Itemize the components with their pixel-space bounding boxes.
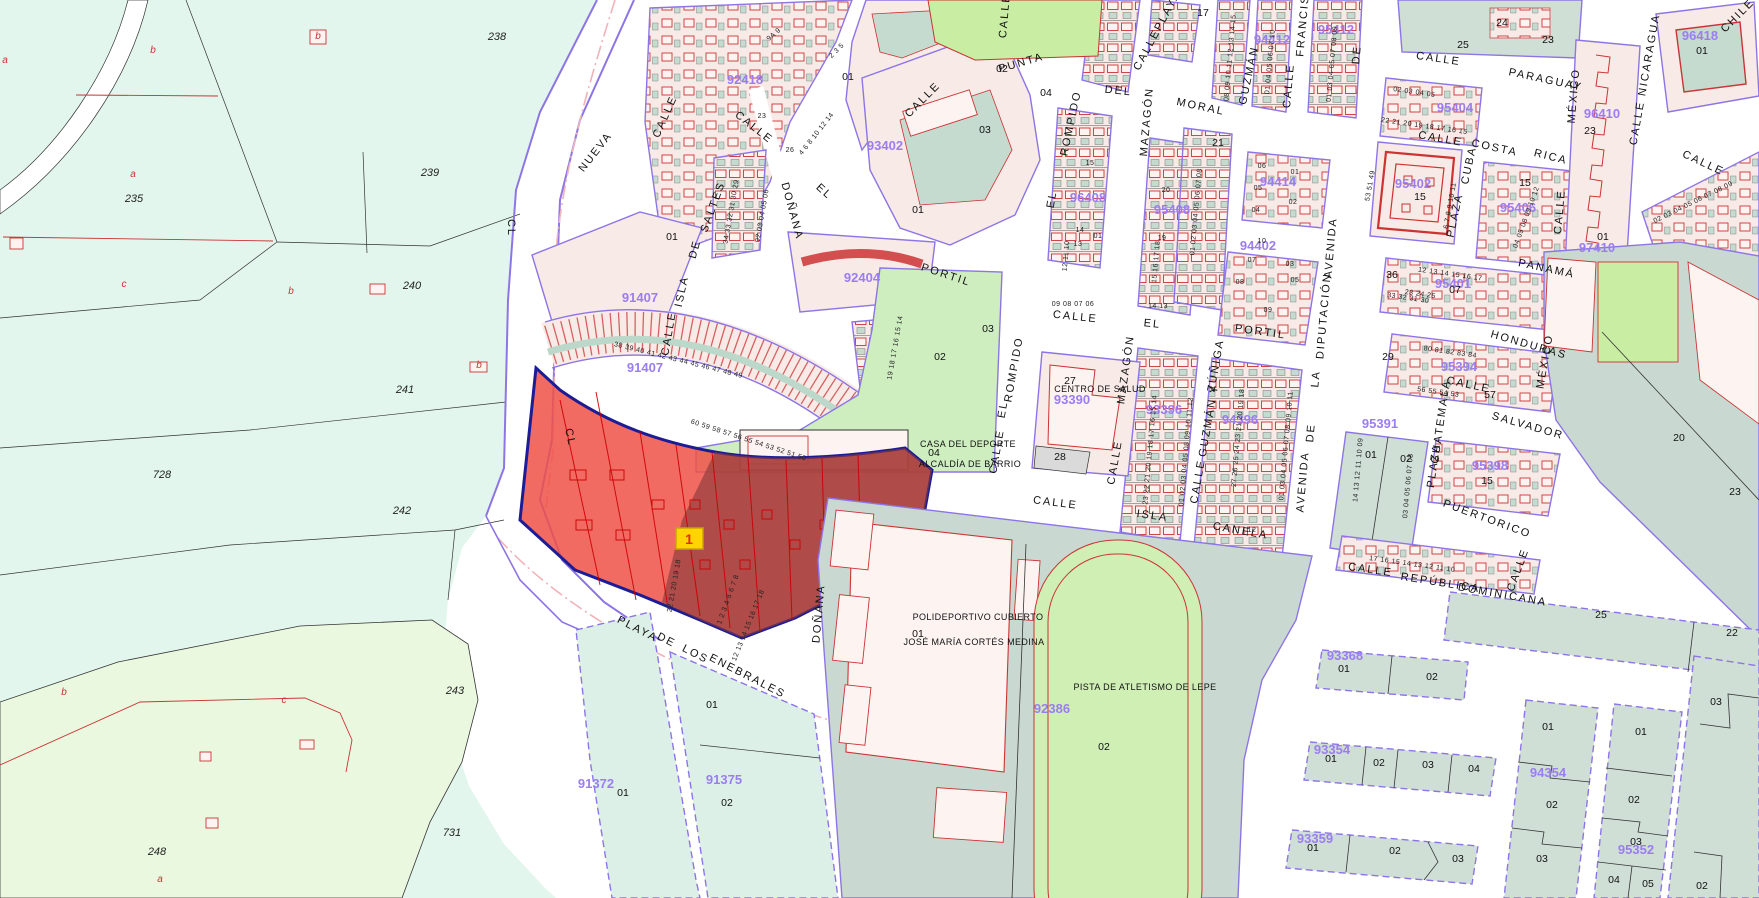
rural-parcel-number: 242 — [392, 505, 411, 517]
parcel-number: 02 — [996, 63, 1008, 75]
house-number-row: 07 — [1248, 257, 1257, 264]
polideportivo-building — [846, 522, 1012, 772]
rural-parcel-number: 235 — [124, 193, 144, 205]
block-id: 96418 — [1682, 28, 1718, 43]
parcel-number: 03 — [1452, 853, 1464, 865]
rural-letter: b — [61, 687, 67, 698]
facility-label: CASA DEL DEPORTE — [920, 439, 1016, 449]
parcel-number: 15 — [1481, 475, 1493, 487]
parcel-number: 02 — [1546, 799, 1558, 811]
block-id: 92386 — [1034, 701, 1070, 716]
parcel-number: 01 — [1597, 231, 1609, 243]
parcel-number: 03 — [1536, 853, 1548, 865]
parcel-number: 28 — [1054, 451, 1066, 463]
parcel-number: 15 — [1519, 177, 1531, 189]
block-id: 95398 — [1472, 458, 1508, 473]
parcel-number: 21 — [1212, 137, 1224, 149]
rural-letter: b — [476, 360, 482, 371]
block-91372[interactable] — [576, 612, 700, 898]
house-number-row: 05 — [1254, 185, 1263, 192]
street-label: LA — [1309, 370, 1322, 388]
parcel-number: 02 — [1628, 794, 1640, 806]
rural-parcel-number: 240 — [402, 280, 422, 292]
street-label: EL — [814, 181, 835, 202]
street-label: CL — [505, 219, 517, 237]
block-id: 96408 — [1070, 190, 1106, 205]
house-number-row: 04 — [1252, 207, 1261, 214]
block-id: 95402 — [1395, 176, 1431, 191]
block-id: 92404 — [844, 270, 881, 285]
parcel-number: 05 — [1642, 878, 1654, 890]
house-number-row: 4 6 8 10 12 14 — [798, 112, 835, 157]
parcel-number: 03 — [1422, 759, 1434, 771]
house-number-row: 06 — [1258, 163, 1267, 170]
block-id: 94354 — [1530, 765, 1567, 780]
house-number-row: 23 — [758, 113, 767, 120]
parcel-number: 25 — [1595, 609, 1607, 621]
street-label: AVENIDA — [1294, 451, 1311, 513]
parcel-number: 01 — [1696, 45, 1708, 57]
street-label: DE — [1350, 45, 1364, 65]
rural-letter: b — [288, 286, 294, 297]
sports-court — [1598, 262, 1678, 362]
block-moral-s[interactable] — [1174, 128, 1232, 310]
rural-parcel-number: 241 — [395, 384, 414, 396]
street-label: EL — [1143, 317, 1162, 331]
street-label: AVENIDA — [1322, 217, 1339, 279]
facility-label: JOSÉ MARÍA CORTÉS MEDINA — [904, 637, 1045, 647]
parcel-number: 36 — [1386, 269, 1398, 281]
house-number-row: 12 — [1248, 527, 1257, 534]
parcel-number: 01 — [1307, 842, 1319, 854]
street-label: ROMPIDO — [1002, 336, 1025, 404]
parcel-number: 03 — [982, 323, 994, 335]
map-canvas: 1 CLCLCALLENUEVACALLEISLADESALTESCALLEDO… — [0, 0, 1759, 898]
house-number-row: 03 — [1286, 261, 1295, 268]
rural-letter: b — [150, 45, 156, 56]
rural-parcel-number: 239 — [420, 167, 439, 179]
street-label: SALVADOR — [1490, 410, 1565, 442]
house-number-row: 05 — [1291, 277, 1300, 284]
selected-parcel-marker[interactable]: 1 — [676, 528, 703, 549]
parcel-number: 02 — [721, 797, 733, 809]
street-label: DIPUTACIÓN — [1313, 272, 1334, 360]
parcel-number: 23 — [1584, 125, 1596, 137]
parcel-number: 25 — [1457, 39, 1469, 51]
block-id: 95404 — [1437, 100, 1474, 115]
parcel-number: 01 — [617, 787, 629, 799]
street-label: DEL — [1104, 84, 1133, 99]
parcel-number: 02 — [1696, 880, 1708, 892]
rural-letter: c — [282, 695, 287, 706]
parcel-number: 01 — [666, 231, 678, 243]
house-number-row: 13 — [1074, 241, 1083, 248]
rural-area — [0, 0, 597, 898]
rural-parcel-number: 243 — [445, 685, 465, 697]
rural-parcel-number: 728 — [153, 469, 172, 481]
rural-letter: b — [315, 31, 321, 42]
rural-parcel-number: 731 — [443, 827, 461, 839]
parcel-number: 01 — [1365, 449, 1377, 461]
parcel-number: 57 — [1484, 389, 1496, 401]
block-id: 91372 — [578, 776, 614, 791]
marker-number: 1 — [685, 531, 693, 547]
street-label: CALLE — [1281, 63, 1297, 109]
facility-label: CENTRO DE SALUD — [1054, 384, 1146, 394]
street-label: DE — [655, 631, 678, 650]
house-number-row: 15 — [1086, 160, 1095, 167]
block-id: 95408 — [1154, 202, 1190, 217]
street-label: DE — [1304, 423, 1318, 443]
house-number-row: 01 — [1291, 169, 1300, 176]
parcel-number: 02 — [934, 351, 946, 363]
parcel-number: 07 — [1449, 284, 1461, 296]
parcel-number: 24 — [1496, 17, 1508, 29]
block-id: 92418 — [727, 72, 763, 87]
house-number-row: 09 — [1264, 307, 1273, 314]
house-number-row: 09 08 07 06 — [1052, 301, 1094, 308]
block-id: 95394 — [1441, 359, 1478, 374]
parcel-number: 01 — [1635, 726, 1647, 738]
parcel-number: 02 — [1373, 757, 1385, 769]
park[interactable] — [928, 0, 1102, 60]
block-91375[interactable] — [670, 652, 838, 898]
house-number-row: 02 — [1289, 199, 1298, 206]
block-id: 93402 — [867, 138, 903, 153]
parcel-number: 03 — [979, 124, 991, 136]
parcel-number: 01 — [1338, 663, 1350, 675]
house-number-row: 10 — [1258, 238, 1267, 245]
block-id: 95391 — [1362, 416, 1398, 431]
rural-parcel-number: 248 — [147, 846, 167, 858]
parcel-number: 20 — [1673, 432, 1685, 444]
street-label: NUEVA — [576, 130, 614, 174]
parcel-number: 04 — [1468, 763, 1480, 775]
street-label: CALLE — [1052, 309, 1098, 326]
house-number-row: 14 — [1076, 227, 1085, 234]
parcel-number: 04 — [1040, 87, 1052, 99]
street-label: CALLE — [1032, 494, 1078, 511]
block-id: 91407 — [627, 360, 663, 375]
block-id: 93368 — [1327, 648, 1363, 663]
parcel-number: 03 — [1710, 696, 1722, 708]
parcel-number: 01 — [706, 699, 718, 711]
block-id: 94414 — [1260, 174, 1297, 189]
parcel-number: 04 — [1608, 874, 1620, 886]
parcel-number: 02 — [1098, 741, 1110, 753]
block-id: 91407 — [622, 290, 658, 305]
facility-label: ALCALDÍA DE BARRIO — [919, 459, 1021, 469]
block-se-corner[interactable] — [1668, 656, 1759, 898]
house-number-row: 26 — [786, 147, 795, 154]
block-id: 93390 — [1054, 392, 1090, 407]
parcel-number: 01 — [842, 71, 854, 83]
block-id: 96410 — [1584, 106, 1620, 121]
house-number-row: 08 — [1236, 279, 1245, 286]
house-number-row: 19 — [1158, 235, 1167, 242]
parcel-number: 01 — [912, 204, 924, 216]
parcel-number: 29 — [1382, 351, 1394, 363]
parcel-number: 02 — [1389, 845, 1401, 857]
street-label: FRANCIS — [1294, 0, 1311, 57]
parcel-number: 22 — [1726, 627, 1738, 639]
house-number-row: 14 13 — [1148, 303, 1168, 310]
parcel-number: 23 — [1729, 486, 1741, 498]
parcel-number: 23 — [1542, 34, 1554, 46]
rural-letter: a — [2, 55, 8, 66]
house-number-row: 12 11 10 — [1062, 240, 1072, 271]
house-number-row: 20 — [1162, 187, 1171, 194]
street-label: RICA — [1533, 147, 1569, 167]
parcel-number: 03 — [1630, 836, 1642, 848]
parcel-number: 15 — [1414, 191, 1426, 203]
rural-letter: a — [130, 169, 136, 180]
street-label: CALLE — [1680, 148, 1726, 178]
house-number-row: 01 — [1094, 233, 1103, 240]
athletics-field[interactable] — [1034, 540, 1202, 898]
cadastral-map-viewport: 1 CLCLCALLENUEVACALLEISLADESALTESCALLEDO… — [0, 0, 1759, 898]
facility-label: POLIDEPORTIVO CUBIERTO — [913, 612, 1044, 622]
parcel-number: 02 — [1426, 671, 1438, 683]
rural-letter: a — [157, 874, 163, 885]
facility-label: PISTA DE ATLETISMO DE LEPE — [1073, 682, 1216, 692]
parcel-number: 17 — [1197, 7, 1209, 19]
parcel-number: 01 — [1325, 753, 1337, 765]
block-id: 91375 — [706, 772, 742, 787]
rural-letter: c — [122, 279, 127, 290]
rural-parcel-number: 238 — [487, 31, 507, 43]
parcel-number: 01 — [1542, 721, 1554, 733]
